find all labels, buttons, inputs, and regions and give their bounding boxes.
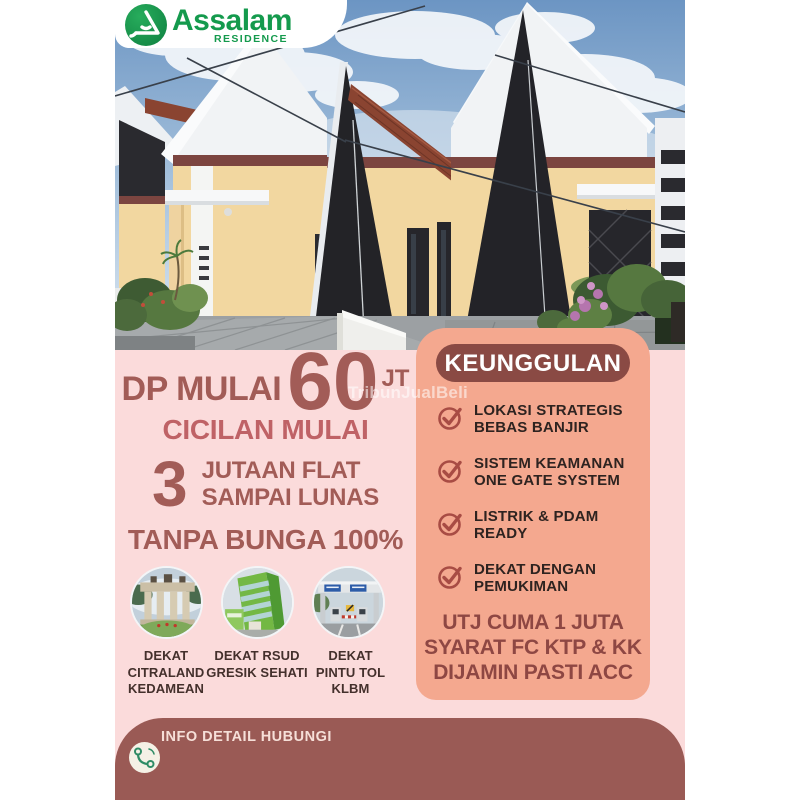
property-flyer: Assalam RESIDENCE DP MULAI 60 JT CICILAN… xyxy=(115,0,685,800)
citraland-gate-photo xyxy=(130,566,203,639)
advantage-text: DEKAT DENGAN PEMUKIMAN xyxy=(474,562,596,595)
caption-line: DEKAT xyxy=(299,648,402,665)
booking-promo: UTJ CUMA 1 JUTA SYARAT FC KTP & KK DIJAM… xyxy=(416,610,650,685)
promo-line: SYARAT FC KTP & KK xyxy=(416,635,650,660)
nearby-photos-row xyxy=(130,566,385,639)
installment-desc-line1: JUTAAN FLAT xyxy=(202,457,379,484)
caption-line: PINTU TOL xyxy=(299,665,402,682)
advantage-line: PEMUKIMAN xyxy=(474,579,596,596)
installment-label: CICILAN MULAI xyxy=(115,414,416,446)
contact-label: INFO DETAIL HUBUNGI xyxy=(161,729,332,745)
caption-line: GRESIK SEHATI xyxy=(202,665,312,682)
list-item: DEKAT DENGAN PEMUKIMAN xyxy=(437,562,650,595)
caption-line: KLBM xyxy=(299,681,402,698)
offer-section: DP MULAI 60 JT CICILAN MULAI 3 JUTAAN FL… xyxy=(115,350,416,718)
rsud-hospital-photo xyxy=(221,566,294,639)
installment-desc-line2: SAMPAI LUNAS xyxy=(202,484,379,511)
advantage-line: DEKAT DENGAN xyxy=(474,562,596,579)
watermark-text: TribunJualBeli xyxy=(348,383,468,403)
ad-flyer-page: Assalam RESIDENCE DP MULAI 60 JT CICILAN… xyxy=(0,0,800,800)
assalam-logo-icon xyxy=(125,4,167,46)
installment-desc: JUTAAN FLAT SAMPAI LUNAS xyxy=(202,457,379,511)
down-payment-value: 60 xyxy=(287,341,378,423)
list-item: LISTRIK & PDAM READY xyxy=(437,509,650,542)
advantage-line: READY xyxy=(474,526,598,543)
advantage-line: ONE GATE SYSTEM xyxy=(474,473,625,490)
down-payment-row: DP MULAI 60 JT xyxy=(115,350,416,414)
check-icon xyxy=(437,457,464,484)
phone-icon xyxy=(129,742,160,773)
toll-gate-photo xyxy=(312,566,385,639)
advantages-list: LOKASI STRATEGIS BEBAS BANJIR SISTEM KEA… xyxy=(416,403,650,595)
installment-value: 3 xyxy=(152,452,188,516)
caption-line: DEKAT RSUD xyxy=(202,648,312,665)
promo-line: UTJ CUMA 1 JUTA xyxy=(416,610,650,635)
list-item: LOKASI STRATEGIS BEBAS BANJIR xyxy=(437,403,650,436)
nearby-caption-rsud: DEKAT RSUD GRESIK SEHATI xyxy=(202,648,312,681)
list-item: SISTEM KEAMANAN ONE GATE SYSTEM xyxy=(437,456,650,489)
brand-subtitle: RESIDENCE xyxy=(214,33,288,45)
advantage-text: LOKASI STRATEGIS BEBAS BANJIR xyxy=(474,403,623,436)
contact-footer: INFO DETAIL HUBUNGI xyxy=(115,718,685,800)
installment-row: 3 JUTAAN FLAT SAMPAI LUNAS xyxy=(115,452,416,516)
nearby-caption-toll: DEKAT PINTU TOL KLBM xyxy=(299,648,402,698)
houses-photo-art xyxy=(115,0,685,350)
advantage-line: SISTEM KEAMANAN xyxy=(474,456,625,473)
advantage-line: LOKASI STRATEGIS xyxy=(474,403,623,420)
houses-photo xyxy=(115,0,685,350)
advantage-line: LISTRIK & PDAM xyxy=(474,509,598,526)
advantages-title: KEUNGGULAN xyxy=(436,344,630,382)
check-icon xyxy=(437,510,464,537)
check-icon xyxy=(437,563,464,590)
down-payment-label: DP MULAI xyxy=(122,370,282,409)
advantage-text: SISTEM KEAMANAN ONE GATE SYSTEM xyxy=(474,456,625,489)
interest-note: TANPA BUNGA 100% xyxy=(115,524,416,556)
caption-line: KEDAMEAN xyxy=(112,681,220,698)
advantage-text: LISTRIK & PDAM READY xyxy=(474,509,598,542)
advantage-line: BEBAS BANJIR xyxy=(474,420,623,437)
promo-line: DIJAMIN PASTI ACC xyxy=(416,660,650,685)
brand-badge: Assalam RESIDENCE xyxy=(115,0,347,48)
check-icon xyxy=(437,404,464,431)
